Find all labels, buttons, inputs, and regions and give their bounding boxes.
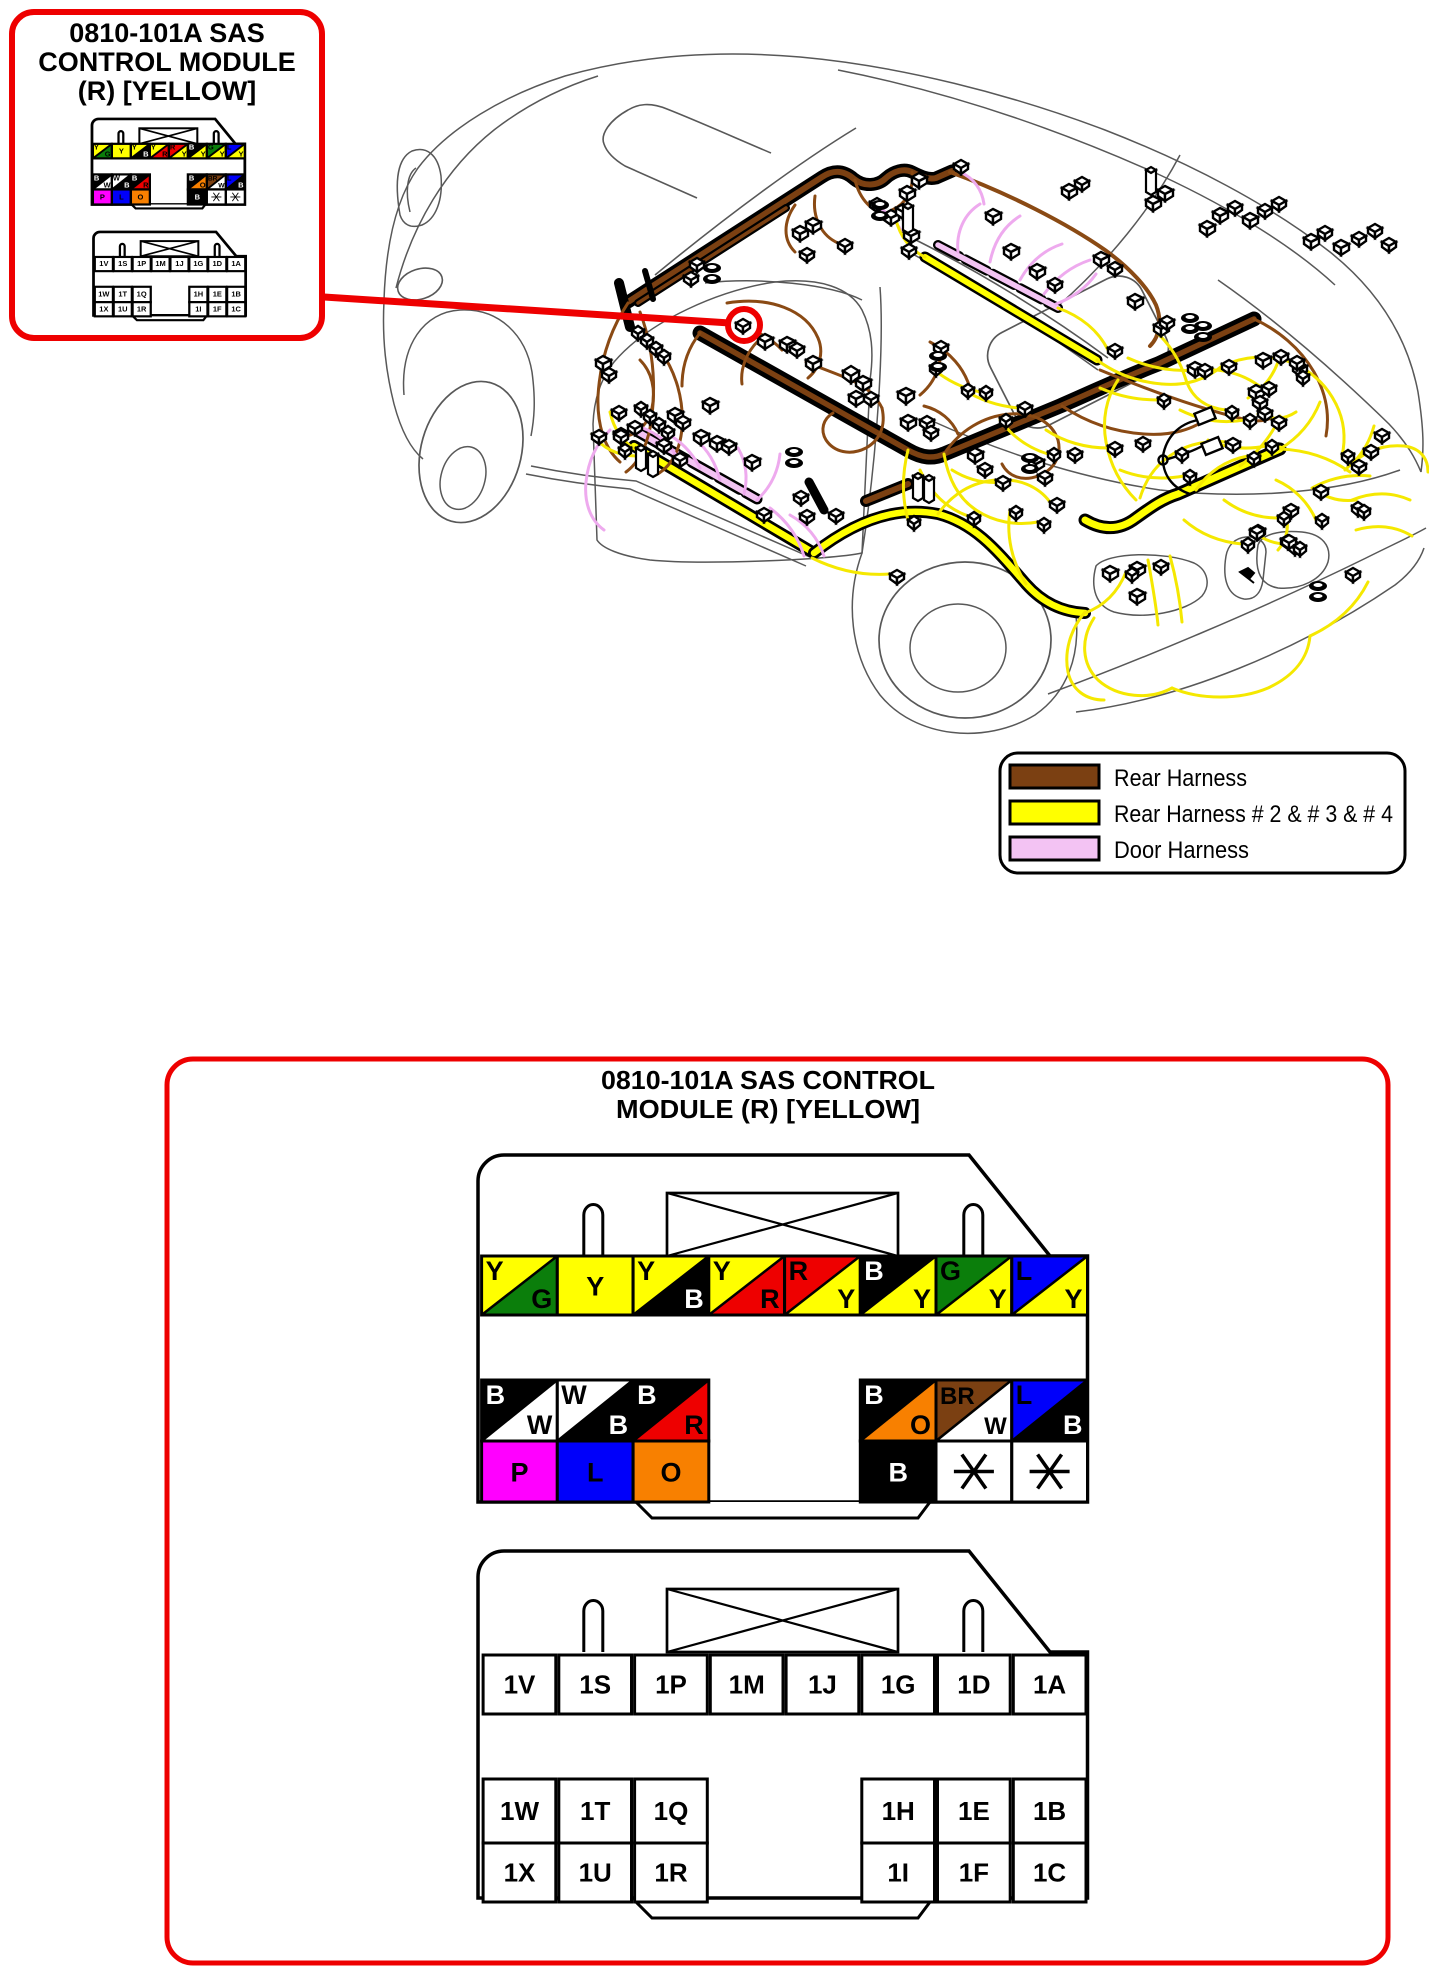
svg-text:Rear Harness # 2 & # 3 & # 4: Rear Harness # 2 & # 3 & # 4	[1114, 801, 1393, 828]
svg-text:CONTROL MODULE: CONTROL MODULE	[38, 47, 296, 77]
svg-text:0810-101A SAS CONTROL: 0810-101A SAS CONTROL	[601, 1065, 935, 1095]
svg-text:Rear Harness: Rear Harness	[1114, 765, 1247, 792]
svg-text:(R) [YELLOW]: (R) [YELLOW]	[78, 76, 256, 106]
svg-text:0810-101A SAS: 0810-101A SAS	[69, 18, 265, 48]
svg-text:Door Harness: Door Harness	[1114, 837, 1249, 864]
svg-text:MODULE (R) [YELLOW]: MODULE (R) [YELLOW]	[616, 1094, 920, 1124]
